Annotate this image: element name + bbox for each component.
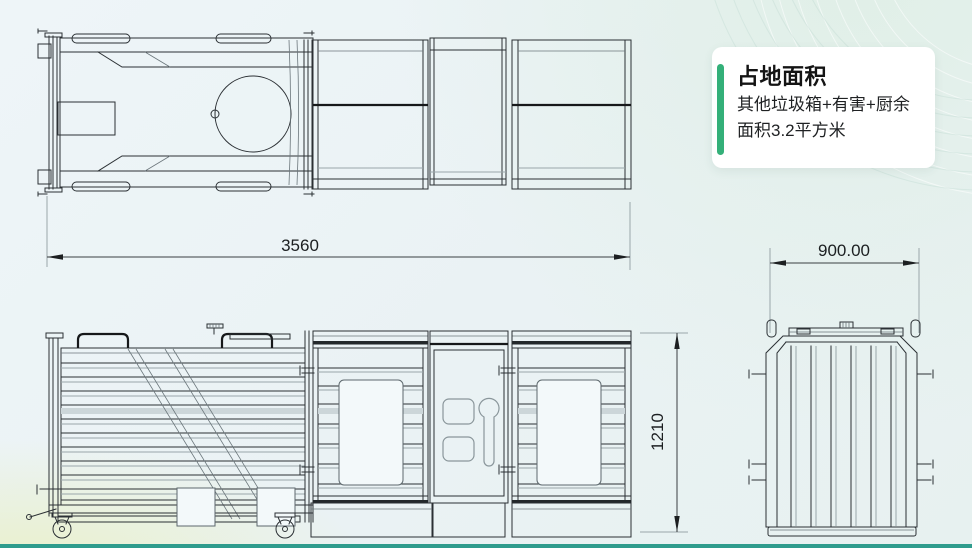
- dimension-overall-length: 3560: [47, 196, 630, 270]
- console-slot-upper: [443, 399, 474, 424]
- bottom-accent-bar: [0, 544, 972, 548]
- info-card-accent-bar: [717, 64, 724, 155]
- info-card-line2: 面积3.2平方米: [737, 118, 910, 144]
- console-handle-shape: [479, 398, 499, 466]
- module1-door-panel: [339, 380, 403, 485]
- side-view-drawing: [27, 324, 632, 538]
- dim-height-value: 1210: [648, 413, 667, 451]
- info-card-line1: 其他垃圾箱+有害+厨余: [737, 92, 910, 118]
- module2-door-panel: [537, 380, 601, 485]
- console-slot-lower: [443, 437, 474, 461]
- dimension-overall-height: 1210: [640, 333, 688, 532]
- info-card-title: 占地面积: [737, 59, 827, 91]
- top-view-drawing: [38, 29, 631, 196]
- info-card-body: 其他垃圾箱+有害+厨余 面积3.2平方米: [737, 92, 910, 144]
- end-view-drawing: 900.00: [749, 241, 933, 536]
- info-card: 占地面积 其他垃圾箱+有害+厨余 面积3.2平方米: [712, 47, 935, 168]
- dim-width-value: 900.00: [818, 241, 870, 260]
- dim-length-value: 3560: [281, 236, 319, 255]
